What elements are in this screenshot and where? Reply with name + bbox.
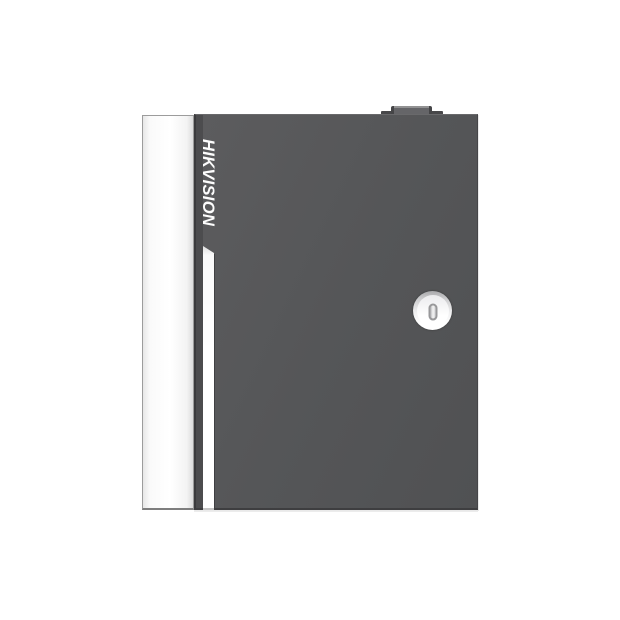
door-stripe-foot: [203, 508, 214, 510]
front-door: HIKVISION: [194, 114, 478, 510]
door-stripe-shadow: [214, 254, 215, 508]
side-panel: [142, 115, 194, 510]
hikvision-logo: HIKVISION: [199, 139, 217, 234]
lock-face: [417, 295, 449, 327]
product-photo: HIKVISION: [0, 0, 620, 620]
lock-cylinder: [413, 291, 452, 330]
door-stripe: [203, 246, 214, 508]
keyhole-icon: [428, 303, 437, 320]
brand-text: HIKVISION: [199, 139, 217, 234]
